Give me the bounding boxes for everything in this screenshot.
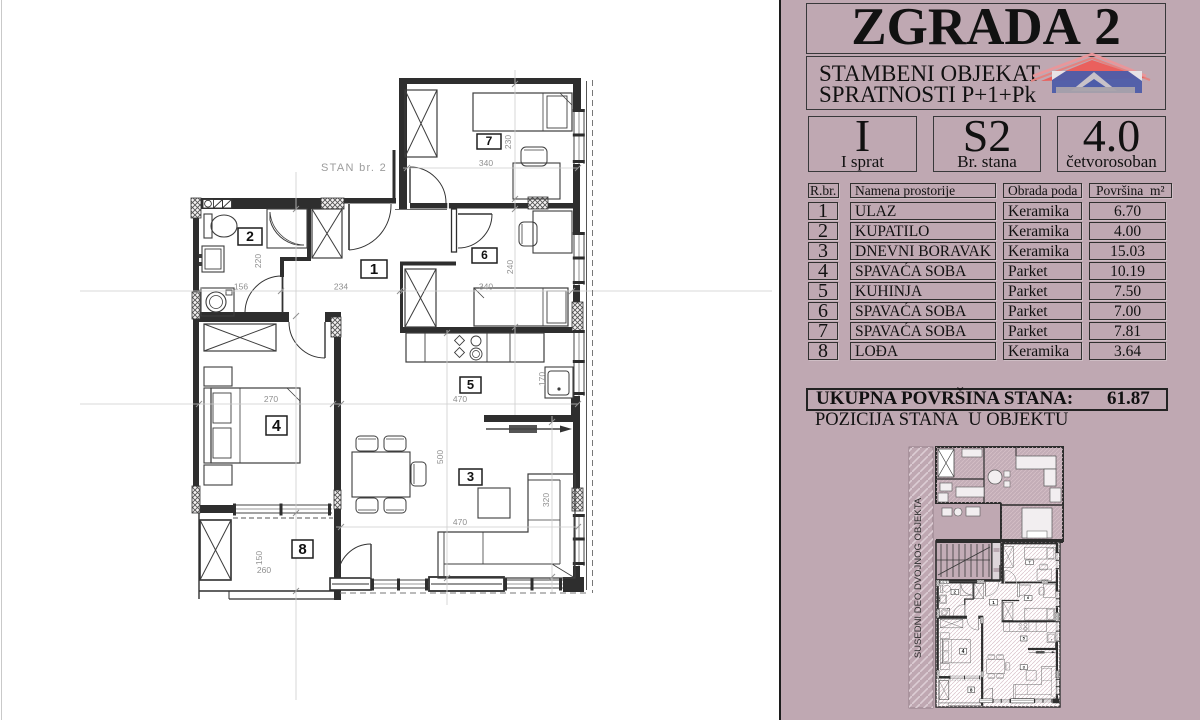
svg-text:340: 340 [479,158,493,168]
svg-text:2: 2 [246,228,254,244]
svg-text:230: 230 [503,135,513,149]
svg-text:3: 3 [467,469,474,484]
svg-text:270: 270 [264,394,278,404]
svg-text:340: 340 [479,282,493,292]
svg-text:170: 170 [537,372,547,386]
svg-text:1: 1 [370,261,378,278]
svg-text:8: 8 [298,541,306,558]
svg-text:220: 220 [253,254,263,268]
svg-text:4: 4 [272,418,281,435]
svg-text:5: 5 [467,377,474,392]
svg-text:234: 234 [334,282,348,292]
svg-text:150: 150 [254,551,264,565]
svg-text:320: 320 [541,493,551,507]
svg-text:7: 7 [486,134,493,148]
svg-text:470: 470 [453,517,467,527]
svg-text:SUSEDNI DEO DVOJNOG OBJEKTA: SUSEDNI DEO DVOJNOG OBJEKTA [913,497,924,658]
svg-text:156: 156 [234,282,248,292]
svg-text:240: 240 [505,260,515,274]
svg-text:470: 470 [453,394,467,404]
svg-text:260: 260 [257,565,271,575]
svg-text:STAN br. 2: STAN br. 2 [321,162,387,174]
svg-text:500: 500 [435,450,445,464]
svg-text:6: 6 [481,248,488,262]
